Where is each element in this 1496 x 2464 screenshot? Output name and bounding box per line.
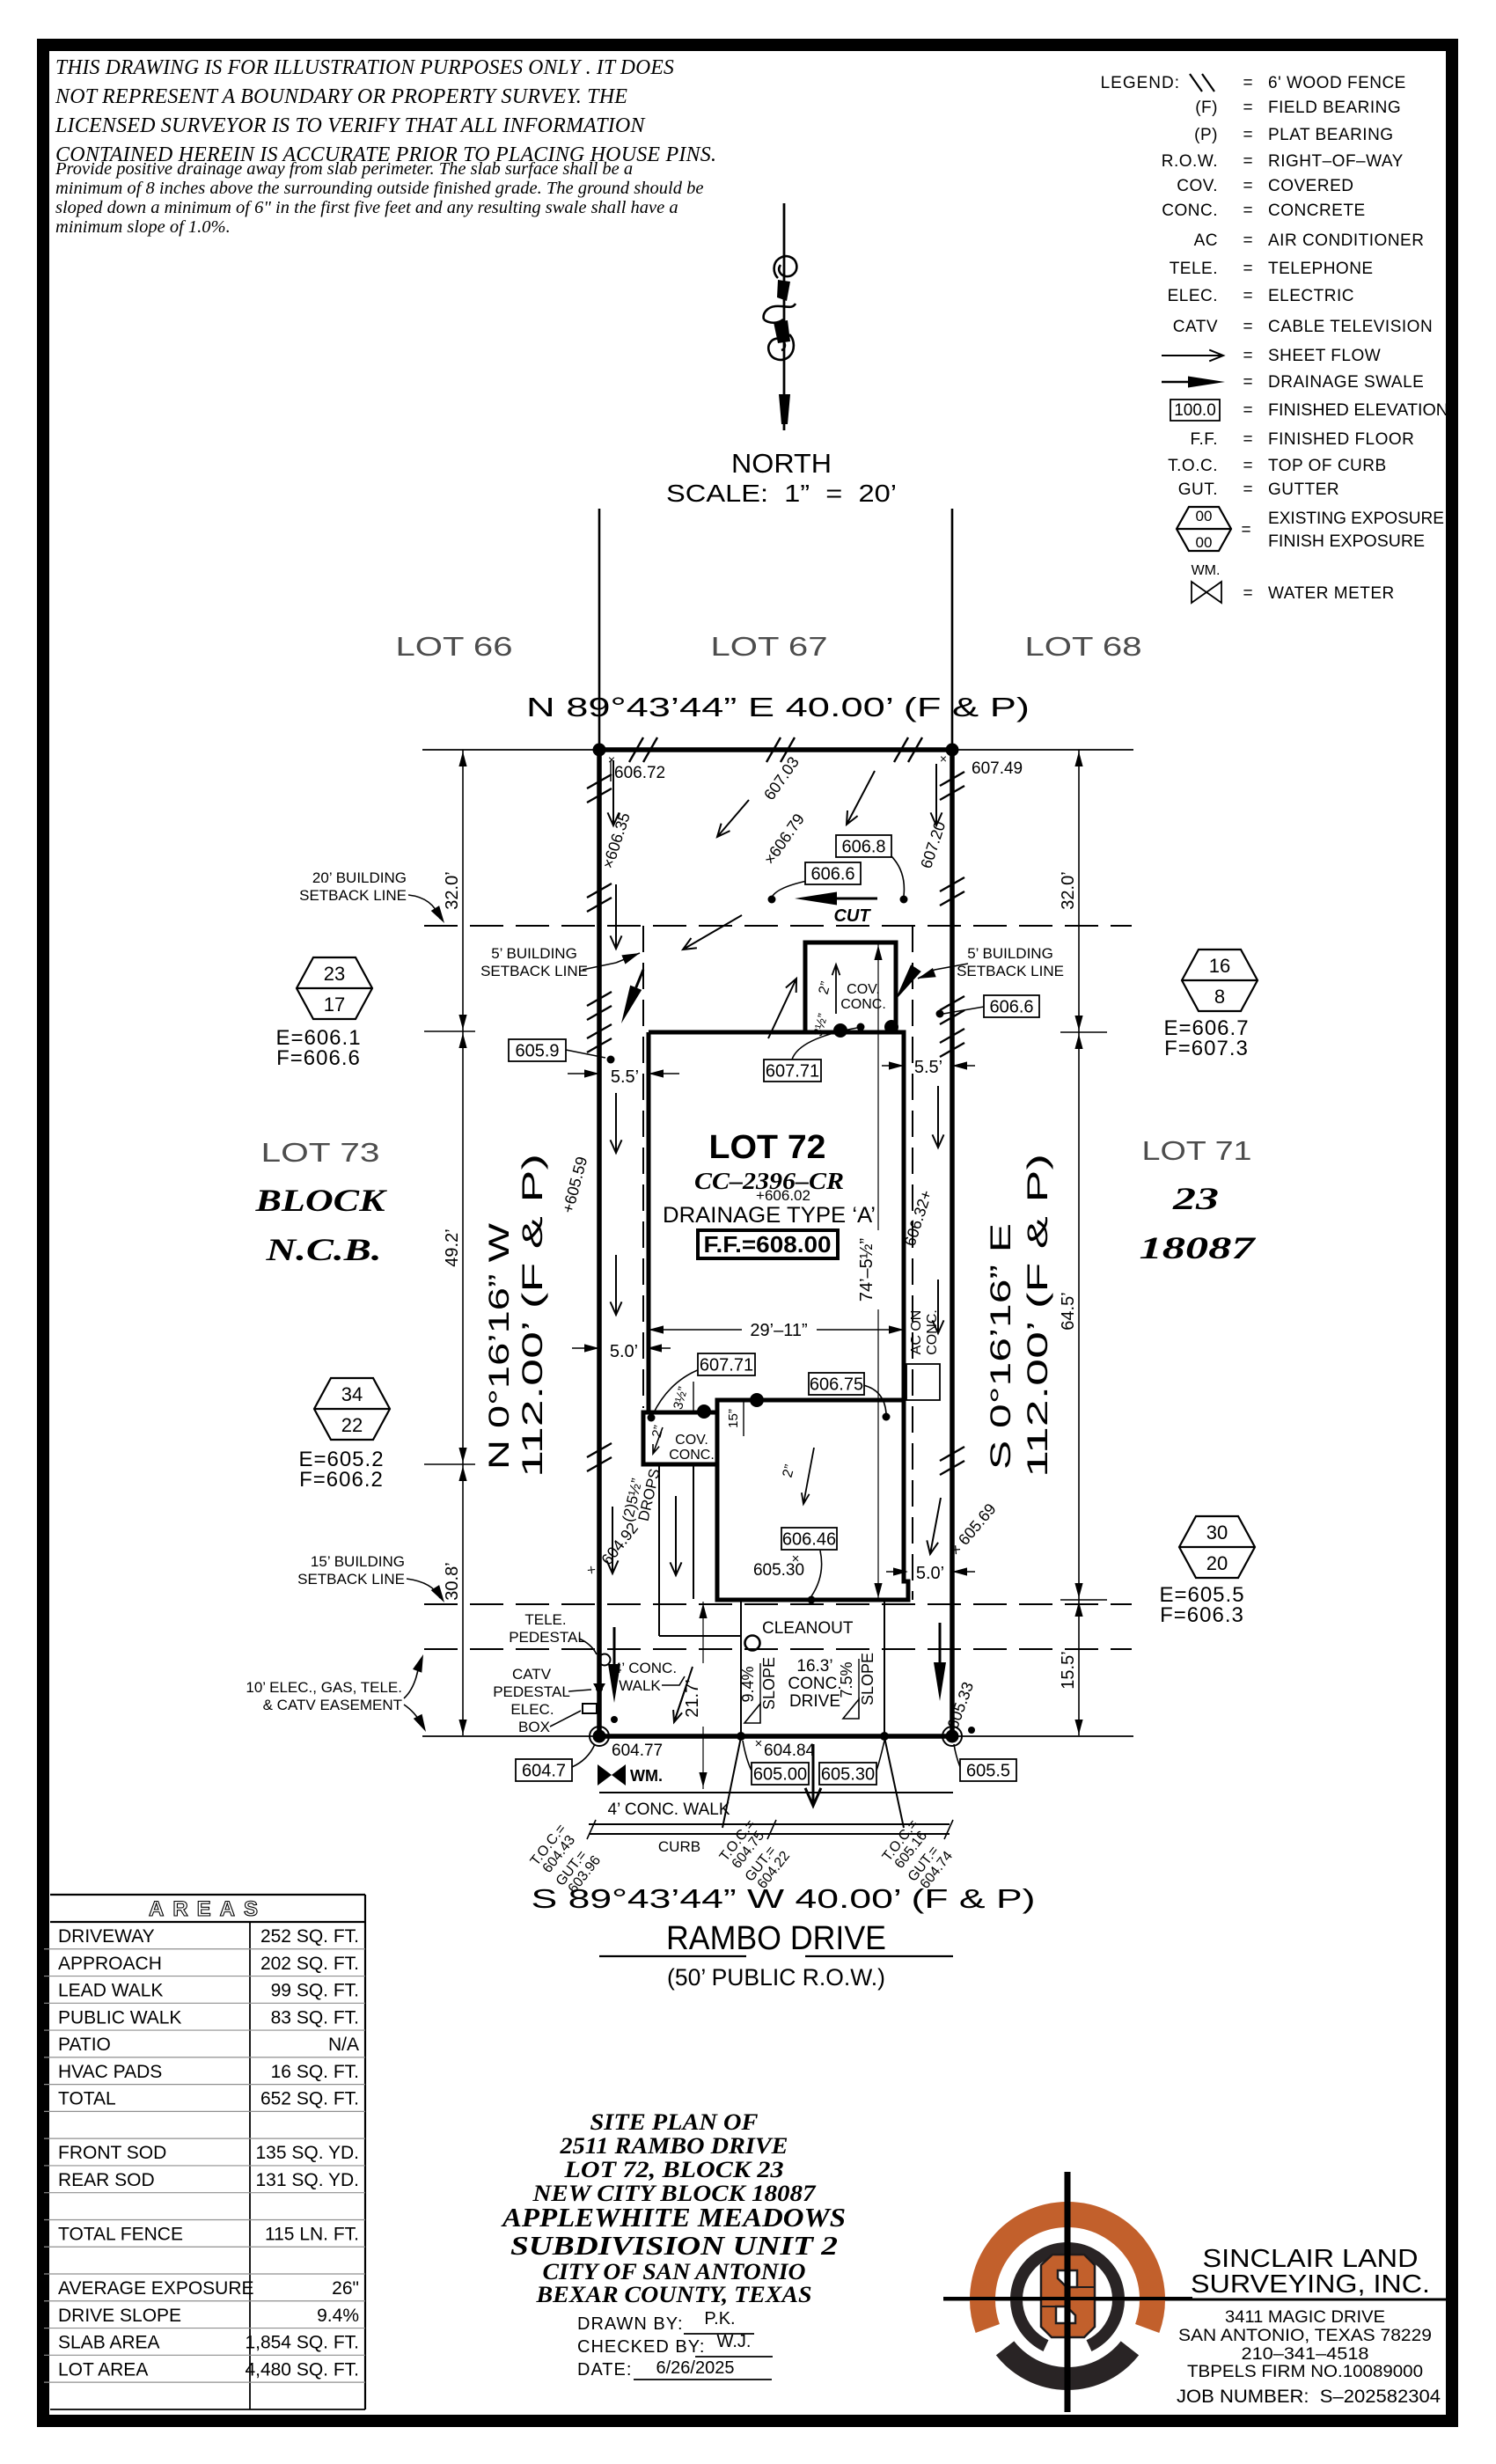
- svg-text:BOX: BOX: [518, 1719, 550, 1735]
- svg-text:1,854 SQ. FT.: 1,854 SQ. FT.: [245, 2333, 359, 2353]
- svg-text:HVAC PADS: HVAC PADS: [58, 2062, 162, 2082]
- svg-text:SLAB AREA: SLAB AREA: [58, 2333, 160, 2353]
- svg-text:CITY OF SAN ANTONIO: CITY OF SAN ANTONIO: [543, 2259, 806, 2284]
- svg-text:CABLE TELEVISION: CABLE TELEVISION: [1268, 318, 1433, 336]
- svg-text:AREAS: AREAS: [149, 1897, 267, 1921]
- svg-text:LOT 71: LOT 71: [1142, 1135, 1252, 1166]
- svg-text:8: 8: [1214, 986, 1225, 1008]
- svg-text:SETBACK LINE: SETBACK LINE: [297, 1571, 405, 1588]
- svg-text:15’ BUILDING: 15’ BUILDING: [311, 1553, 405, 1570]
- svg-text:TOP OF CURB: TOP OF CURB: [1268, 457, 1387, 475]
- svg-text:PEDESTAL: PEDESTAL: [509, 1629, 586, 1646]
- svg-text:DRIVE SLOPE: DRIVE SLOPE: [58, 2306, 181, 2326]
- svg-text:FIELD BEARING: FIELD BEARING: [1268, 99, 1401, 117]
- svg-text:5.0’: 5.0’: [916, 1564, 944, 1583]
- svg-text:604.84: 604.84: [764, 1742, 816, 1760]
- svg-text:605.5: 605.5: [966, 1762, 1010, 1781]
- svg-text:AIR CONDITIONER: AIR CONDITIONER: [1268, 231, 1424, 250]
- svg-text:CONCRETE: CONCRETE: [1268, 202, 1366, 220]
- svg-text:SURVEYING, INC.: SURVEYING, INC.: [1191, 2270, 1430, 2299]
- svg-text:=: =: [1243, 74, 1252, 92]
- svg-text:9.4%: 9.4%: [739, 1666, 757, 1702]
- svg-text:607.71: 607.71: [700, 1356, 753, 1375]
- svg-text:49.2’: 49.2’: [443, 1228, 462, 1266]
- svg-text:6/26/2025: 6/26/2025: [656, 2358, 735, 2378]
- svg-text:COV.: COV.: [847, 982, 880, 997]
- svg-text:LEGEND:: LEGEND:: [1101, 74, 1180, 92]
- svg-text:252 SQ. FT.: 252 SQ. FT.: [260, 1926, 359, 1947]
- svg-text:=: =: [1243, 373, 1252, 392]
- svg-text:604.7: 604.7: [522, 1762, 566, 1781]
- svg-text:S 0°16’16” E: S 0°16’16” E: [985, 1223, 1016, 1470]
- svg-text:100.0: 100.0: [1174, 401, 1216, 420]
- svg-text:604.77: 604.77: [612, 1742, 663, 1760]
- svg-text:5’ BUILDING: 5’ BUILDING: [967, 945, 1053, 962]
- svg-text:JOB NUMBER: S–202582304: JOB NUMBER: S–202582304: [1177, 2387, 1441, 2407]
- svg-text:=: =: [1241, 521, 1250, 539]
- svg-text:29’–11”: 29’–11”: [750, 1321, 807, 1340]
- svg-text:=: =: [1243, 202, 1252, 220]
- svg-text:PATIO: PATIO: [58, 2035, 111, 2055]
- svg-text:NORTH: NORTH: [731, 448, 832, 479]
- svg-text:PEDESTAL: PEDESTAL: [493, 1683, 570, 1700]
- svg-text:26": 26": [332, 2278, 359, 2299]
- svg-text:F=607.3: F=607.3: [1164, 1037, 1249, 1060]
- svg-text:SHEET FLOW: SHEET FLOW: [1268, 347, 1381, 365]
- svg-text:83 SQ. FT.: 83 SQ. FT.: [271, 2007, 359, 2028]
- svg-text:=: =: [1243, 126, 1252, 144]
- svg-text:CURB: CURB: [658, 1838, 700, 1855]
- svg-text:DRIVEWAY: DRIVEWAY: [58, 1926, 155, 1947]
- svg-text:SLOPE: SLOPE: [859, 1653, 876, 1705]
- svg-text:COVERED: COVERED: [1268, 177, 1353, 195]
- svg-text:COV.: COV.: [675, 1433, 708, 1448]
- svg-text:99 SQ. FT.: 99 SQ. FT.: [271, 1981, 359, 2001]
- svg-text:ELEC.: ELEC.: [1168, 287, 1218, 305]
- svg-text:=: =: [1243, 430, 1252, 449]
- svg-text:N/A: N/A: [328, 2035, 359, 2055]
- svg-text:NOT REPRESENT A BOUNDARY OR PR: NOT REPRESENT A BOUNDARY OR PROPERTY SUR…: [55, 85, 627, 108]
- svg-text:DRAINAGE TYPE ‘A’: DRAINAGE TYPE ‘A’: [663, 1203, 876, 1228]
- svg-text:LOT 68: LOT 68: [1025, 631, 1142, 662]
- svg-text:606.75: 606.75: [810, 1375, 863, 1395]
- svg-text:SETBACK LINE: SETBACK LINE: [480, 963, 588, 979]
- svg-text:16: 16: [1209, 955, 1230, 977]
- svg-text:ELEC.: ELEC.: [510, 1701, 554, 1718]
- svg-text:16.3’: 16.3’: [796, 1657, 832, 1676]
- svg-text:SINCLAIR LAND: SINCLAIR LAND: [1203, 2245, 1419, 2273]
- svg-text:BEXAR COUNTY, TEXAS: BEXAR COUNTY, TEXAS: [535, 2282, 811, 2307]
- svg-text:23: 23: [324, 963, 345, 985]
- svg-text:LOT 72: LOT 72: [709, 1129, 826, 1166]
- svg-text:SLOPE: SLOPE: [760, 1657, 778, 1710]
- svg-text:=: =: [1243, 287, 1252, 305]
- svg-text:(P): (P): [1194, 126, 1218, 144]
- svg-text:TELE.: TELE.: [1170, 260, 1218, 278]
- svg-text:17: 17: [324, 994, 345, 1016]
- svg-text:FRONT SOD: FRONT SOD: [58, 2143, 166, 2163]
- svg-text:minimum of 8 inches above the: minimum of 8 inches above the surroundin…: [55, 179, 703, 198]
- svg-text:FINISHED FLOOR: FINISHED FLOOR: [1268, 430, 1414, 449]
- svg-text:SUBDIVISION UNIT 2: SUBDIVISION UNIT 2: [510, 2230, 838, 2261]
- svg-text:F=606.3: F=606.3: [1160, 1603, 1244, 1627]
- svg-text:32.0’: 32.0’: [1059, 871, 1078, 909]
- svg-text:R.O.W.: R.O.W.: [1162, 152, 1218, 171]
- svg-text:202 SQ. FT.: 202 SQ. FT.: [260, 1954, 359, 1974]
- svg-text:20: 20: [1206, 1552, 1228, 1574]
- svg-text:SAN ANTONIO, TEXAS 78229: SAN ANTONIO, TEXAS 78229: [1178, 2327, 1432, 2345]
- svg-text:131 SQ. YD.: 131 SQ. YD.: [255, 2170, 359, 2190]
- svg-text:74’–5½”: 74’–5½”: [857, 1238, 876, 1302]
- svg-text:TBPELS FIRM NO.10089000: TBPELS FIRM NO.10089000: [1187, 2363, 1423, 2381]
- svg-text:LOT 73: LOT 73: [261, 1137, 380, 1168]
- svg-text:REAR SOD: REAR SOD: [58, 2170, 155, 2190]
- svg-text:EXISTING EXPOSURE: EXISTING EXPOSURE: [1268, 510, 1444, 528]
- svg-text:112.00’ (F & P): 112.00’ (F & P): [1022, 1154, 1053, 1478]
- svg-text:FINISHED ELEVATION: FINISHED ELEVATION: [1268, 401, 1448, 420]
- svg-text:5’ BUILDING: 5’ BUILDING: [491, 945, 577, 962]
- svg-text:RIGHT–OF–WAY: RIGHT–OF–WAY: [1268, 152, 1404, 171]
- svg-text:SITE PLAN OF: SITE PLAN OF: [590, 2109, 759, 2135]
- svg-text:CUT: CUT: [833, 906, 871, 926]
- svg-text:+606.02: +606.02: [756, 1187, 810, 1204]
- svg-text:00: 00: [1196, 534, 1213, 551]
- svg-text:=: =: [1243, 152, 1252, 171]
- svg-text:W.J.: W.J.: [717, 2332, 752, 2351]
- svg-text:TELE.: TELE.: [524, 1611, 566, 1628]
- svg-text:×: ×: [940, 752, 947, 766]
- svg-text:5.5’: 5.5’: [611, 1067, 639, 1087]
- svg-text:606.6: 606.6: [810, 865, 854, 884]
- svg-text:WM.: WM.: [1192, 563, 1221, 578]
- svg-text:112.00’ (F & P): 112.00’ (F & P): [517, 1154, 548, 1478]
- svg-text:DRIVE: DRIVE: [789, 1692, 840, 1711]
- svg-text:ELECTRIC: ELECTRIC: [1268, 287, 1354, 305]
- svg-text:CATV: CATV: [512, 1666, 552, 1683]
- svg-text:00: 00: [1196, 508, 1213, 524]
- svg-text:FINISH EXPOSURE: FINISH EXPOSURE: [1268, 532, 1425, 551]
- svg-text:=: =: [1243, 401, 1252, 420]
- svg-text:COV.: COV.: [1177, 177, 1218, 195]
- svg-text:=: =: [1243, 231, 1252, 250]
- svg-text:GUTTER: GUTTER: [1268, 480, 1339, 499]
- svg-text:606.8: 606.8: [841, 838, 885, 857]
- svg-text:18087: 18087: [1140, 1230, 1258, 1265]
- svg-text:LICENSED SURVEYOR IS TO VERIFY: LICENSED SURVEYOR IS TO VERIFY THAT ALL …: [55, 114, 646, 137]
- svg-text:15.5’: 15.5’: [1059, 1651, 1078, 1689]
- svg-text:& CATV EASEMENT: & CATV EASEMENT: [263, 1697, 402, 1713]
- svg-text:minimum slope of 1.0%.: minimum slope of 1.0%.: [55, 217, 231, 237]
- svg-text:N 0°16’16” W: N 0°16’16” W: [483, 1222, 515, 1470]
- svg-text:LOT 67: LOT 67: [711, 631, 828, 662]
- svg-text:LOT 72, BLOCK 23: LOT 72, BLOCK 23: [563, 2157, 783, 2182]
- svg-text:CONC.: CONC.: [1162, 202, 1218, 220]
- svg-text:=: =: [1243, 318, 1252, 336]
- svg-text:CONC.: CONC.: [669, 1448, 715, 1463]
- svg-text:CLEANOUT: CLEANOUT: [762, 1619, 854, 1638]
- svg-text:AC ON: AC ON: [909, 1310, 924, 1355]
- svg-text:Provide positive drainage away: Provide positive drainage away from slab…: [55, 159, 633, 179]
- svg-text:AVERAGE EXPOSURE: AVERAGE EXPOSURE: [58, 2278, 254, 2299]
- svg-text:F.F.: F.F.: [1190, 430, 1218, 449]
- svg-text:4,480 SQ. FT.: 4,480 SQ. FT.: [245, 2359, 359, 2380]
- svg-text:30: 30: [1206, 1522, 1228, 1544]
- svg-text:BLOCK: BLOCK: [254, 1183, 388, 1218]
- svg-text:115 LN. FT.: 115 LN. FT.: [265, 2224, 359, 2244]
- svg-text:607.49: 607.49: [972, 759, 1023, 778]
- svg-text:DRAINAGE SWALE: DRAINAGE SWALE: [1268, 373, 1424, 392]
- svg-text:(F): (F): [1195, 99, 1218, 117]
- svg-text:THIS DRAWING IS FOR ILLUSTRATI: THIS DRAWING IS FOR ILLUSTRATION PURPOSE…: [55, 56, 674, 79]
- svg-text:WM.: WM.: [630, 1767, 663, 1785]
- svg-text:N 89°43’44” E 40.00’ (F & P): N 89°43’44” E 40.00’ (F & P): [526, 692, 1030, 722]
- svg-text:7.5%: 7.5%: [838, 1661, 855, 1698]
- svg-text:SETBACK LINE: SETBACK LINE: [957, 963, 1064, 979]
- svg-text:sloped down a minimum of 6" in: sloped down a minimum of 6" in the first…: [55, 198, 678, 217]
- svg-text:5.5’: 5.5’: [914, 1058, 942, 1077]
- svg-text:PLAT BEARING: PLAT BEARING: [1268, 126, 1394, 144]
- svg-text:T.O.C.: T.O.C.: [1168, 457, 1218, 475]
- svg-text:CHECKED BY:: CHECKED BY:: [577, 2337, 705, 2357]
- svg-text:605.00: 605.00: [753, 1765, 807, 1785]
- svg-text:GUT.: GUT.: [1178, 480, 1218, 499]
- svg-text:21.7’: 21.7’: [683, 1679, 702, 1717]
- svg-text:CONC.: CONC.: [840, 997, 886, 1012]
- svg-text:4’ CONC. WALK: 4’ CONC. WALK: [607, 1800, 730, 1819]
- svg-text:RAMBO DRIVE: RAMBO DRIVE: [666, 1920, 886, 1957]
- svg-text:F=606.2: F=606.2: [299, 1468, 384, 1492]
- svg-text:20’ BUILDING: 20’ BUILDING: [312, 869, 407, 886]
- svg-text:5.0’: 5.0’: [610, 1342, 638, 1361]
- svg-text:=: =: [1243, 584, 1252, 603]
- svg-text:AC: AC: [1194, 231, 1218, 250]
- svg-text:605.30: 605.30: [821, 1765, 875, 1785]
- svg-text:=: =: [1243, 347, 1252, 365]
- svg-text:P.K.: P.K.: [704, 2309, 735, 2328]
- svg-text:=: =: [1243, 177, 1252, 195]
- svg-text:F=606.6: F=606.6: [276, 1046, 361, 1070]
- svg-text:TOTAL: TOTAL: [58, 2089, 116, 2109]
- svg-text:4’ CONC.: 4’ CONC.: [613, 1660, 677, 1676]
- svg-text:LEAD WALK: LEAD WALK: [58, 1981, 163, 2001]
- svg-text:652 SQ. FT.: 652 SQ. FT.: [260, 2089, 359, 2109]
- svg-text:=: =: [1243, 99, 1252, 117]
- svg-text:CATV: CATV: [1173, 318, 1218, 336]
- svg-text:=: =: [1243, 480, 1252, 499]
- svg-text:64.5’: 64.5’: [1059, 1292, 1078, 1330]
- svg-text:16 SQ. FT.: 16 SQ. FT.: [271, 2062, 359, 2082]
- svg-text:606.6: 606.6: [989, 998, 1033, 1017]
- svg-text:WALK: WALK: [619, 1677, 661, 1694]
- svg-text:LOT AREA: LOT AREA: [58, 2359, 148, 2380]
- svg-text:23: 23: [1172, 1181, 1219, 1216]
- svg-text:TELEPHONE: TELEPHONE: [1268, 260, 1374, 278]
- svg-text:605.9: 605.9: [515, 1042, 559, 1061]
- svg-text:DRAWN BY:: DRAWN BY:: [577, 2314, 684, 2334]
- svg-text:S 89°43’44” W 40.00’ (F & P): S 89°43’44” W 40.00’ (F & P): [532, 1883, 1036, 1914]
- svg-text:×: ×: [792, 1551, 800, 1566]
- svg-text:22: 22: [341, 1414, 363, 1436]
- svg-text:6' WOOD FENCE: 6' WOOD FENCE: [1268, 74, 1406, 92]
- svg-text:34: 34: [341, 1383, 363, 1405]
- svg-text:SCALE: 1” = 20’: SCALE: 1” = 20’: [666, 480, 897, 507]
- svg-text:×: ×: [755, 1736, 763, 1751]
- svg-text:SETBACK LINE: SETBACK LINE: [299, 887, 407, 904]
- svg-text:32.0’: 32.0’: [443, 871, 462, 909]
- svg-text:=: =: [1243, 457, 1252, 475]
- svg-text:N.C.B.: N.C.B.: [265, 1232, 381, 1267]
- svg-text:607.71: 607.71: [766, 1062, 819, 1082]
- svg-text:210–341–4518: 210–341–4518: [1242, 2345, 1369, 2364]
- svg-text:PUBLIC WALK: PUBLIC WALK: [58, 2007, 181, 2028]
- svg-text:CONC.: CONC.: [788, 1675, 841, 1693]
- svg-text:APPROACH: APPROACH: [58, 1954, 162, 1974]
- svg-text:APPLEWHITE MEADOWS: APPLEWHITE MEADOWS: [501, 2202, 846, 2233]
- svg-text:606.46: 606.46: [782, 1530, 836, 1550]
- svg-text:3411 MAGIC DRIVE: 3411 MAGIC DRIVE: [1225, 2308, 1385, 2327]
- svg-text:LOT 66: LOT 66: [396, 631, 513, 662]
- svg-text:DATE:: DATE:: [577, 2360, 632, 2380]
- svg-text:10’ ELEC., GAS, TELE.: 10’ ELEC., GAS, TELE.: [246, 1679, 402, 1696]
- svg-text:30.8’: 30.8’: [443, 1562, 462, 1600]
- svg-text:=: =: [1243, 260, 1252, 278]
- svg-text:15”: 15”: [726, 1409, 741, 1428]
- svg-text:WATER METER: WATER METER: [1268, 584, 1395, 603]
- svg-text:606.72: 606.72: [614, 764, 665, 782]
- svg-text:2511 RAMBO DRIVE: 2511 RAMBO DRIVE: [559, 2133, 788, 2159]
- svg-text:F.F.=608.00: F.F.=608.00: [704, 1231, 832, 1258]
- svg-text:TOTAL FENCE: TOTAL FENCE: [58, 2224, 183, 2244]
- svg-text:135 SQ. YD.: 135 SQ. YD.: [255, 2143, 359, 2163]
- svg-text:(50’ PUBLIC R.O.W.): (50’ PUBLIC R.O.W.): [667, 1964, 885, 1991]
- svg-text:9.4%: 9.4%: [317, 2306, 359, 2326]
